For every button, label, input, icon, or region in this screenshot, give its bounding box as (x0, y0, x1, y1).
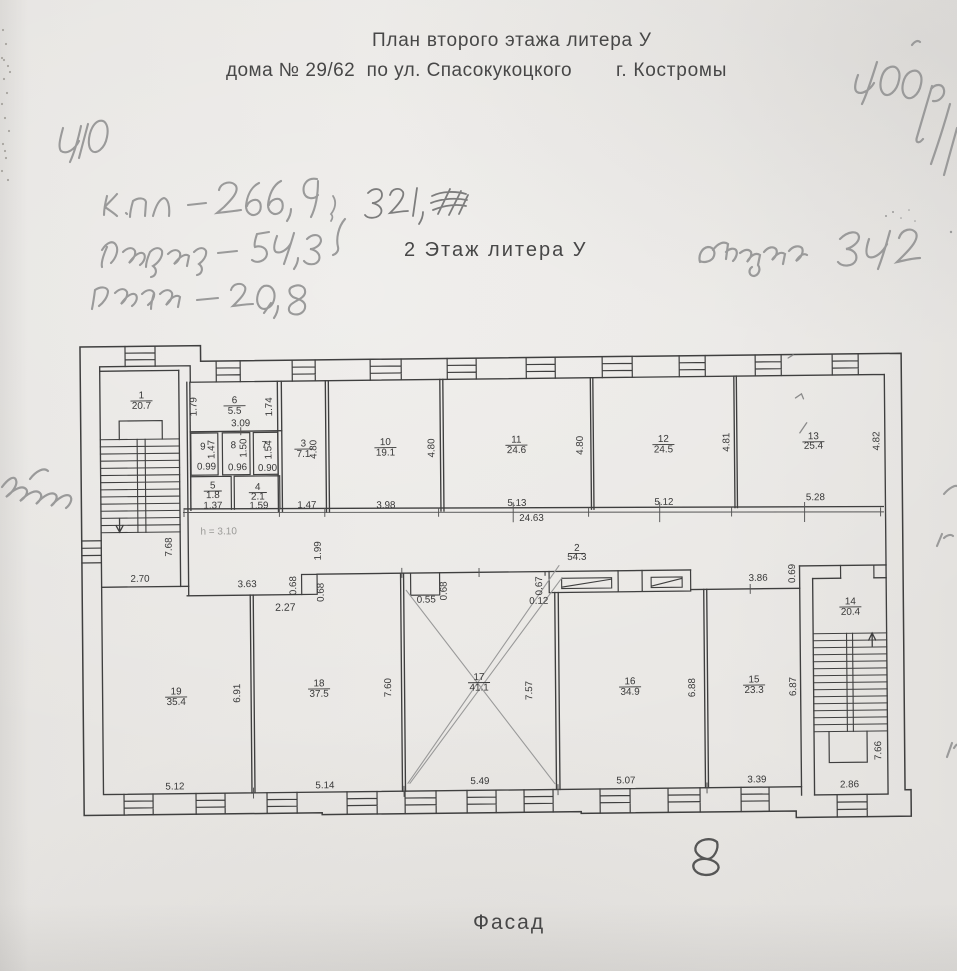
svg-text:3: 3 (301, 438, 307, 449)
svg-text:h = 3.10: h = 3.10 (200, 526, 237, 537)
svg-text:35.4: 35.4 (166, 697, 186, 708)
svg-text:0.69: 0.69 (787, 564, 798, 583)
svg-text:24.6: 24.6 (507, 445, 527, 456)
svg-text:4.81: 4.81 (721, 433, 732, 452)
svg-text:8: 8 (231, 440, 237, 451)
svg-text:11: 11 (511, 435, 522, 446)
svg-text:0.12: 0.12 (529, 596, 548, 607)
svg-text:6.87: 6.87 (788, 677, 799, 696)
svg-text:54.3: 54.3 (567, 552, 587, 563)
svg-text:3.39: 3.39 (747, 774, 766, 785)
svg-text:20.7: 20.7 (132, 401, 151, 412)
svg-text:7.68: 7.68 (164, 537, 175, 557)
svg-text:5.12: 5.12 (654, 497, 673, 508)
svg-text:0.90: 0.90 (258, 463, 278, 474)
svg-text:14: 14 (845, 596, 857, 607)
svg-text:19.1: 19.1 (376, 447, 396, 458)
svg-text:9: 9 (200, 442, 206, 453)
svg-text:23.3: 23.3 (744, 685, 764, 696)
svg-text:7.60: 7.60 (383, 677, 394, 697)
svg-text:3.09: 3.09 (231, 418, 250, 429)
svg-text:1.47: 1.47 (206, 440, 217, 459)
svg-text:25.4: 25.4 (804, 441, 824, 452)
svg-text:7.66: 7.66 (873, 740, 884, 760)
svg-text:0.96: 0.96 (228, 462, 248, 473)
svg-text:3.98: 3.98 (376, 500, 396, 511)
svg-text:2.70: 2.70 (130, 574, 150, 585)
svg-text:3.86: 3.86 (749, 573, 769, 584)
svg-text:4.80: 4.80 (308, 439, 319, 459)
svg-text:34.9: 34.9 (620, 687, 640, 698)
svg-text:1.37: 1.37 (203, 500, 222, 511)
svg-text:15: 15 (748, 674, 760, 685)
svg-text:1.74: 1.74 (264, 397, 275, 417)
svg-text:0.68: 0.68 (316, 582, 327, 602)
svg-text:24.5: 24.5 (654, 444, 674, 455)
svg-text:16: 16 (624, 676, 636, 687)
svg-text:5.14: 5.14 (315, 780, 335, 791)
svg-text:4.80: 4.80 (575, 435, 586, 455)
svg-text:0.55: 0.55 (417, 594, 437, 605)
svg-text:7.57: 7.57 (524, 681, 535, 700)
svg-text:19: 19 (171, 686, 183, 697)
svg-text:10: 10 (380, 437, 392, 448)
svg-text:17: 17 (473, 672, 484, 683)
svg-text:12: 12 (658, 434, 669, 445)
svg-text:3.63: 3.63 (238, 579, 258, 590)
svg-text:5.28: 5.28 (806, 492, 826, 503)
svg-text:41.1: 41.1 (469, 682, 489, 693)
svg-text:2.27: 2.27 (275, 602, 296, 614)
svg-text:1.79: 1.79 (188, 397, 199, 416)
svg-text:0.99: 0.99 (197, 461, 216, 472)
svg-text:0.68: 0.68 (439, 581, 450, 601)
svg-text:1.50: 1.50 (238, 438, 249, 458)
svg-text:5.12: 5.12 (165, 781, 184, 792)
svg-text:5.5: 5.5 (228, 406, 242, 417)
svg-text:4.82: 4.82 (871, 431, 882, 450)
svg-text:1.8: 1.8 (206, 490, 220, 501)
svg-text:20.4: 20.4 (841, 607, 861, 618)
svg-text:24.63: 24.63 (519, 513, 544, 524)
svg-text:1.59: 1.59 (249, 500, 268, 511)
svg-text:6: 6 (232, 395, 238, 406)
svg-text:0.67: 0.67 (534, 576, 545, 595)
svg-text:6.91: 6.91 (232, 684, 243, 703)
svg-text:5.49: 5.49 (470, 776, 489, 787)
svg-text:18: 18 (313, 678, 325, 689)
svg-text:5.07: 5.07 (616, 775, 635, 786)
svg-text:37.5: 37.5 (309, 689, 329, 700)
svg-text:4.80: 4.80 (426, 438, 437, 458)
svg-text:1: 1 (139, 390, 145, 401)
svg-text:6.88: 6.88 (687, 677, 698, 697)
svg-text:0.68: 0.68 (288, 575, 299, 595)
svg-text:1.47: 1.47 (297, 500, 316, 511)
svg-text:1.99: 1.99 (313, 541, 324, 560)
svg-text:1.54: 1.54 (263, 440, 274, 460)
svg-text:2.86: 2.86 (840, 779, 860, 790)
